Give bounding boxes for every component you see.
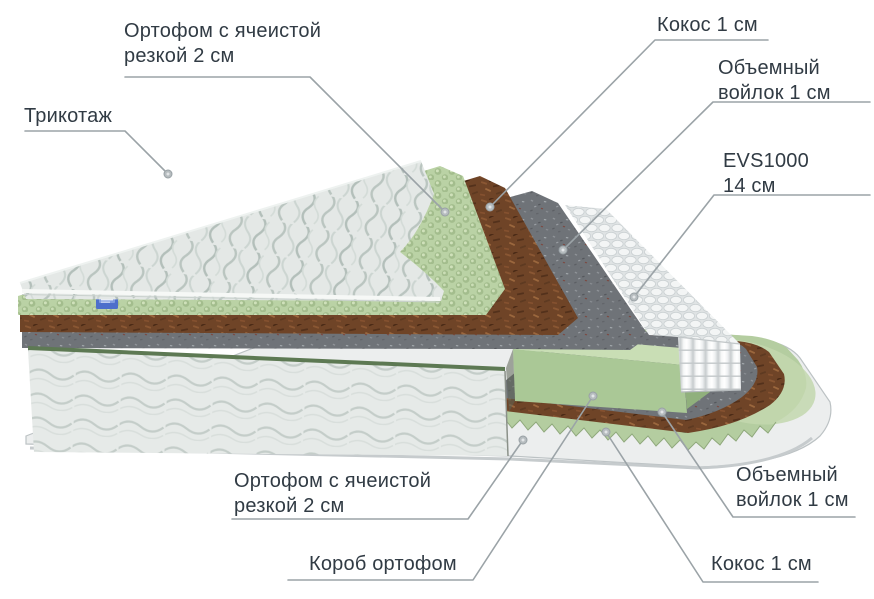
label-line: войлок 1 см (718, 81, 831, 106)
label-evs: EVS1000 14 см (723, 149, 809, 199)
label-kokos-top: Кокос 1 см (657, 13, 758, 38)
leader-trikotazh (25, 131, 168, 174)
mattress-layers-diagram: Ортофом с ячеистой резкой 2 см Трикотаж … (0, 0, 874, 599)
label-line: резкой 2 см (234, 494, 431, 519)
label-line: Объемный (718, 56, 831, 81)
label-line: Кокос 1 см (711, 552, 812, 577)
label-line: Трикотаж (24, 104, 112, 129)
label-line: Ортофом с ячеистой (234, 469, 431, 494)
label-line: EVS1000 (723, 149, 809, 174)
label-line: Ортофом с ячеистой (124, 19, 321, 44)
label-ortofom-top: Ортофом с ячеистой резкой 2 см (124, 19, 321, 69)
layer-knit-cover (20, 161, 444, 302)
label-line: резкой 2 см (124, 44, 321, 69)
label-line: Кокос 1 см (657, 13, 758, 38)
label-voilok-top: Объемный войлок 1 см (718, 56, 831, 106)
label-korob: Короб ортофом (309, 552, 457, 577)
label-line: Короб ортофом (309, 552, 457, 577)
label-line: Объемный (736, 463, 849, 488)
label-trikotazh: Трикотаж (24, 104, 112, 129)
label-line: 14 см (723, 174, 809, 199)
label-kokos-bottom: Кокос 1 см (711, 552, 812, 577)
label-line: войлок 1 см (736, 488, 849, 513)
label-voilok-bottom: Объемный войлок 1 см (736, 463, 849, 513)
label-ortofom-bottom: Ортофом с ячеистой резкой 2 см (234, 469, 431, 519)
